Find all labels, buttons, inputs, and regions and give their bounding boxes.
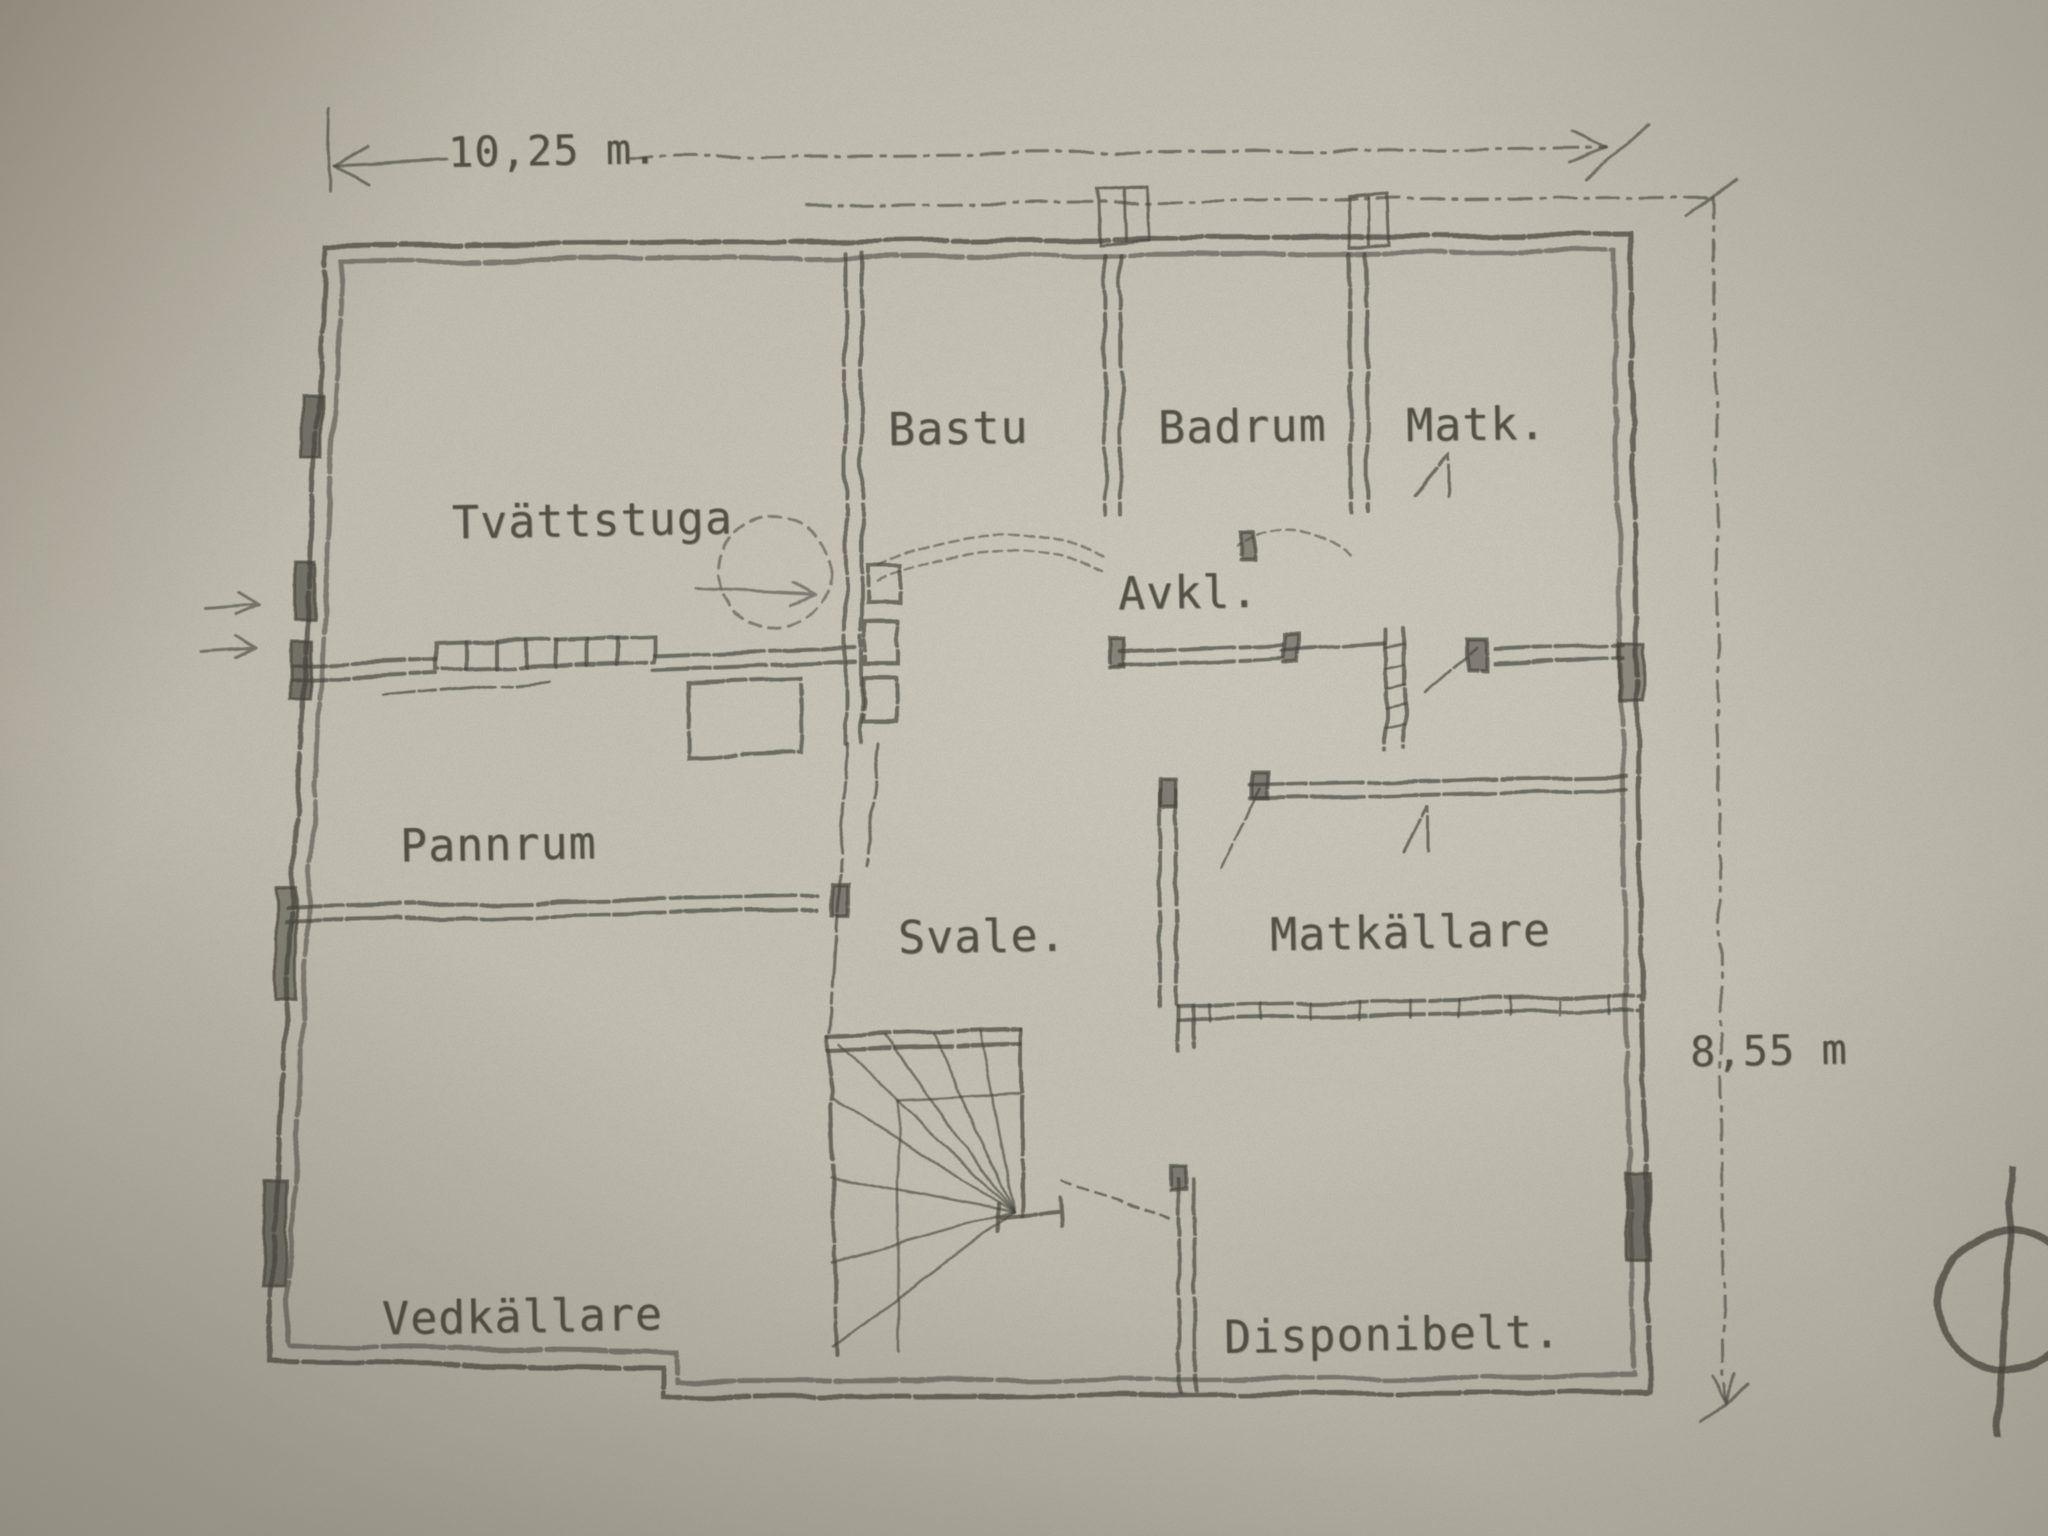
room-label-bastu: Bastu: [888, 401, 1029, 456]
room-label-pannrum: Pannrum: [400, 816, 598, 872]
room-label-badrum: Badrum: [1158, 399, 1327, 455]
room-label-avkl: Avkl.: [1118, 565, 1259, 620]
room-label-tvattstuga: Tvättstuga: [452, 492, 734, 550]
speckle-overlay: [0, 0, 2048, 1536]
floor-plan-drawing: [0, 0, 2048, 1536]
room-label-disponibelt: Disponibelt.: [1224, 1305, 1562, 1364]
room-label-matk: Matk.: [1406, 397, 1547, 452]
room-label-vedkallare: Vedkällare: [382, 1288, 664, 1346]
dimension-height-label: 8,55 m: [1690, 1025, 1849, 1077]
room-label-svale: Svale.: [898, 909, 1067, 965]
scanned-floor-plan-photo: { "plan": { "rooms": [ {"id": "tvattstug…: [0, 0, 2048, 1536]
room-label-matkallare: Matkällare: [1270, 904, 1552, 962]
dimension-width-label: 10,25 m.: [448, 124, 659, 177]
floor-plan-scan: 10,25 m. 8,55 m Tvättstuga Bastu Badrum …: [0, 0, 2048, 1536]
